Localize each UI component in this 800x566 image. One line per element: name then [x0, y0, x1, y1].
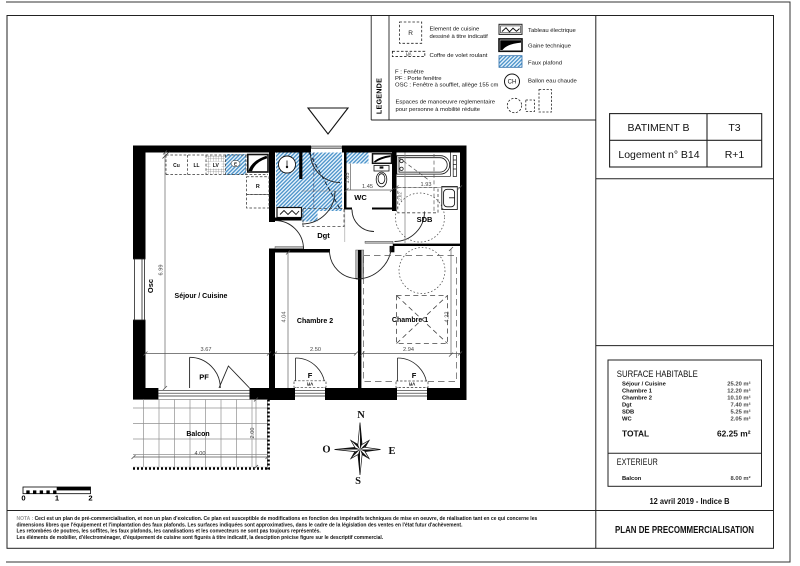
svg-text:VR: VR: [408, 382, 415, 387]
svg-text:3.67: 3.67: [201, 347, 212, 353]
svg-text:1.93: 1.93: [421, 182, 432, 188]
svg-text:T3: T3: [728, 122, 740, 134]
svg-text:8.00 m²: 8.00 m²: [731, 475, 751, 482]
svg-text:Cu: Cu: [173, 163, 180, 169]
svg-text:4.22: 4.22: [445, 312, 451, 323]
svg-text:EXTERIEUR: EXTERIEUR: [617, 457, 658, 467]
svg-text:Les éléments de mobilier, d'él: Les éléments de mobilier, d'électroménag…: [17, 535, 384, 541]
svg-text:25.20 m²: 25.20 m²: [727, 381, 750, 388]
svg-text:SDB: SDB: [417, 215, 433, 224]
svg-text:Coffre de volet roulant: Coffre de volet roulant: [430, 53, 488, 59]
svg-text:pour personne à mobilité rédui: pour personne à mobilité réduite: [396, 107, 481, 113]
svg-text:PLAN DE PRECOMMERCIALISATION: PLAN DE PRECOMMERCIALISATION: [615, 525, 754, 536]
svg-text:WC: WC: [354, 193, 367, 202]
svg-text:SURFACE HABITABLE: SURFACE HABITABLE: [617, 369, 698, 379]
svg-text:O: O: [322, 445, 330, 456]
svg-text:E: E: [234, 162, 237, 167]
svg-text:VR: VR: [306, 381, 313, 386]
svg-text:Element de cuisine: Element de cuisine: [430, 27, 480, 33]
svg-text:62.25 m²: 62.25 m²: [717, 429, 751, 439]
svg-text:R+1: R+1: [725, 149, 745, 161]
svg-text:NOTA : Ceci est un plan de pré: NOTA : Ceci est un plan de pré-commercia…: [17, 516, 538, 522]
svg-text:2: 2: [88, 494, 92, 503]
svg-text:CH: CH: [508, 80, 517, 86]
svg-text:E: E: [388, 446, 395, 457]
svg-text:LL: LL: [193, 163, 199, 169]
svg-text:1.65: 1.65: [345, 173, 351, 184]
svg-text:F : Fenêtre: F : Fenêtre: [395, 70, 425, 76]
svg-text:Balcon: Balcon: [622, 476, 642, 482]
svg-text:Les retombées de poutres, les: Les retombées de poutres, les soffites, …: [17, 529, 322, 535]
svg-text:Chambre 2: Chambre 2: [297, 318, 333, 325]
svg-text:WC: WC: [622, 417, 632, 423]
svg-text:Osc: Osc: [146, 279, 155, 293]
svg-text:6.99: 6.99: [159, 265, 165, 276]
svg-text:4.04: 4.04: [282, 312, 288, 323]
svg-text:2.94: 2.94: [403, 347, 414, 353]
svg-text:SDB: SDB: [622, 410, 634, 416]
svg-text:2.05 m²: 2.05 m²: [731, 416, 751, 423]
svg-text:Logement n° B14: Logement n° B14: [618, 149, 699, 161]
svg-text:S: S: [355, 476, 361, 487]
svg-text:Faux plafond: Faux plafond: [528, 61, 562, 67]
svg-text:Dgt: Dgt: [622, 403, 632, 409]
svg-text:Espaces de manoeuvre reglement: Espaces de manoeuvre reglementaire: [396, 100, 496, 106]
svg-text:R: R: [408, 30, 413, 37]
svg-text:F: F: [308, 371, 313, 380]
svg-text:2.00: 2.00: [250, 428, 256, 439]
svg-text:Dgt: Dgt: [317, 231, 330, 240]
svg-text:R: R: [256, 184, 260, 190]
svg-text:OSC : Fenêtre à soufflet, allè: OSC : Fenêtre à soufflet, allège 155 cm: [395, 83, 498, 89]
svg-text:Ballon eau chaude: Ballon eau chaude: [528, 79, 578, 85]
svg-text:Séjour / Cuisine: Séjour / Cuisine: [622, 382, 667, 388]
svg-text:4.00: 4.00: [195, 451, 206, 457]
svg-text:LV: LV: [213, 163, 220, 169]
svg-text:12.20 m²: 12.20 m²: [727, 388, 750, 395]
svg-text:dimensions libres que l'équipe: dimensions libres que l'équipement et l'…: [17, 522, 464, 528]
svg-text:Balcon: Balcon: [186, 431, 209, 438]
svg-text:10.10 m²: 10.10 m²: [727, 395, 750, 402]
svg-text:2.50: 2.50: [310, 347, 321, 353]
svg-text:LEGENDE: LEGENDE: [375, 78, 384, 114]
svg-text:dessiné à titre indicatif: dessiné à titre indicatif: [430, 34, 489, 40]
svg-text:1.45: 1.45: [362, 184, 373, 190]
svg-text:Gaine technique: Gaine technique: [528, 44, 572, 50]
svg-text:7.40 m²: 7.40 m²: [731, 402, 751, 409]
svg-text:Chambre 2: Chambre 2: [622, 396, 652, 402]
svg-text:Chambre 1: Chambre 1: [622, 389, 653, 395]
svg-text:5.25 m²: 5.25 m²: [731, 409, 751, 416]
svg-text:12 avril 2019 - Indice B: 12 avril 2019 - Indice B: [650, 497, 730, 506]
svg-text:Tableau électrique: Tableau électrique: [528, 28, 577, 34]
svg-text:PF : Porte fenêtre: PF : Porte fenêtre: [395, 76, 442, 82]
svg-text:TOTAL: TOTAL: [622, 429, 649, 439]
svg-text:PF: PF: [199, 373, 209, 382]
svg-text:2.02: 2.02: [398, 192, 403, 201]
svg-text:N: N: [357, 410, 365, 421]
svg-text:Séjour / Cuisine: Séjour / Cuisine: [175, 293, 228, 300]
svg-text:F: F: [412, 371, 417, 380]
svg-text:BATIMENT B: BATIMENT B: [627, 122, 689, 134]
svg-text:VR: VR: [406, 52, 412, 57]
svg-text:0: 0: [21, 494, 25, 503]
